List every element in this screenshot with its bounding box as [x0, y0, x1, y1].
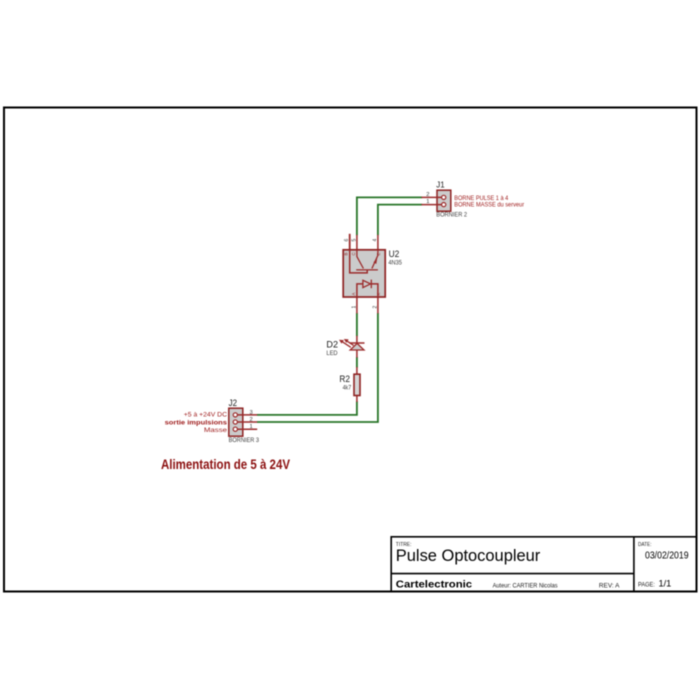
- svg-text:5: 5: [351, 239, 357, 242]
- svg-text:1: 1: [250, 424, 253, 430]
- svg-text:1: 1: [426, 199, 429, 205]
- svg-text:R2: R2: [339, 374, 350, 384]
- svg-text:D2: D2: [326, 339, 338, 349]
- svg-text:1/1: 1/1: [659, 579, 672, 589]
- svg-text:+5 à +24V DC: +5 à +24V DC: [184, 412, 228, 418]
- svg-text:03/02/2019: 03/02/2019: [645, 551, 689, 562]
- svg-text:3: 3: [250, 410, 253, 416]
- svg-text:2: 2: [250, 417, 253, 423]
- svg-text:Cartelectronic: Cartelectronic: [396, 580, 473, 591]
- svg-text:6: 6: [344, 239, 350, 242]
- svg-text:Masse: Masse: [204, 428, 228, 434]
- svg-text:Auteur: CARTIER Nicolas: Auteur: CARTIER Nicolas: [493, 582, 559, 589]
- svg-text:4: 4: [372, 239, 378, 242]
- svg-text:Alimentation de 5 à 24V: Alimentation de 5 à 24V: [161, 457, 290, 472]
- svg-text:LED: LED: [326, 351, 338, 357]
- svg-text:J2: J2: [229, 398, 237, 408]
- svg-text:BORNIER 3: BORNIER 3: [229, 437, 260, 444]
- svg-text:PAGE:: PAGE:: [638, 581, 655, 588]
- svg-text:J1: J1: [436, 181, 445, 190]
- svg-text:2: 2: [372, 306, 378, 309]
- svg-text:4N35: 4N35: [388, 261, 402, 267]
- svg-text:B: B: [344, 253, 349, 256]
- svg-text:BORNE MASSE du serveur: BORNE MASSE du serveur: [454, 202, 524, 209]
- svg-text:A: A: [351, 293, 356, 296]
- svg-text:BORNIER 2: BORNIER 2: [436, 212, 467, 219]
- svg-text:U2: U2: [389, 249, 400, 259]
- svg-text:REV: A: REV: A: [599, 582, 620, 589]
- svg-text:4k7: 4k7: [343, 386, 352, 392]
- svg-text:E: E: [376, 253, 381, 256]
- svg-text:2: 2: [426, 192, 429, 198]
- svg-text:C: C: [351, 252, 356, 255]
- svg-text:sortie impulsions: sortie impulsions: [165, 420, 228, 427]
- svg-text:1: 1: [351, 306, 357, 309]
- svg-text:Pulse Optocoupleur: Pulse Optocoupleur: [396, 546, 541, 565]
- svg-text:K: K: [376, 293, 381, 296]
- svg-text:DATE:: DATE:: [638, 542, 652, 548]
